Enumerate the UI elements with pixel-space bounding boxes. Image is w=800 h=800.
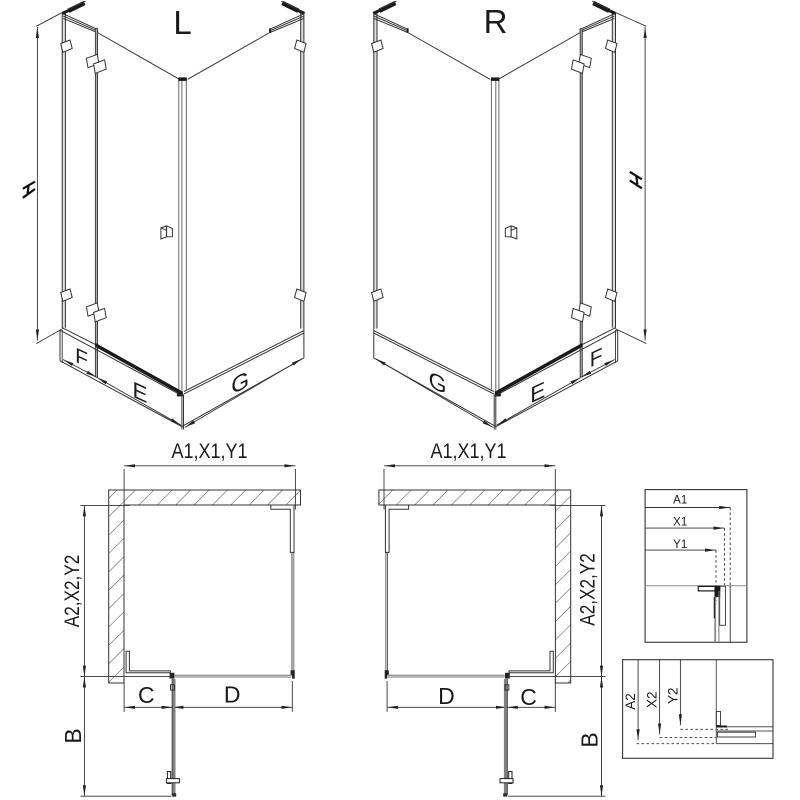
svg-text:F: F xyxy=(590,343,603,373)
svg-text:A1,X1,Y1: A1,X1,Y1 xyxy=(431,439,507,463)
svg-text:B: B xyxy=(577,732,603,747)
svg-text:L: L xyxy=(173,4,191,41)
svg-text:G: G xyxy=(231,366,249,400)
svg-text:Y2: Y2 xyxy=(666,687,681,704)
svg-text:D: D xyxy=(438,683,455,709)
svg-text:C: C xyxy=(138,682,155,708)
svg-text:Y1: Y1 xyxy=(673,539,687,551)
svg-text:R: R xyxy=(484,3,508,40)
svg-text:X1: X1 xyxy=(673,516,687,528)
svg-text:E: E xyxy=(530,378,545,410)
svg-text:B: B xyxy=(60,728,86,743)
svg-text:D: D xyxy=(224,682,241,708)
svg-text:A2: A2 xyxy=(623,693,638,710)
svg-text:A1: A1 xyxy=(673,495,687,507)
svg-text:G: G xyxy=(429,366,447,400)
svg-text:A1,X1,Y1: A1,X1,Y1 xyxy=(172,439,248,463)
svg-text:E: E xyxy=(132,378,147,410)
svg-text:F: F xyxy=(75,343,88,373)
svg-text:A2,X2,Y2: A2,X2,Y2 xyxy=(60,555,84,628)
svg-text:C: C xyxy=(520,684,537,710)
svg-text:A2,X2,Y2: A2,X2,Y2 xyxy=(576,553,600,626)
svg-text:X2: X2 xyxy=(645,691,660,708)
